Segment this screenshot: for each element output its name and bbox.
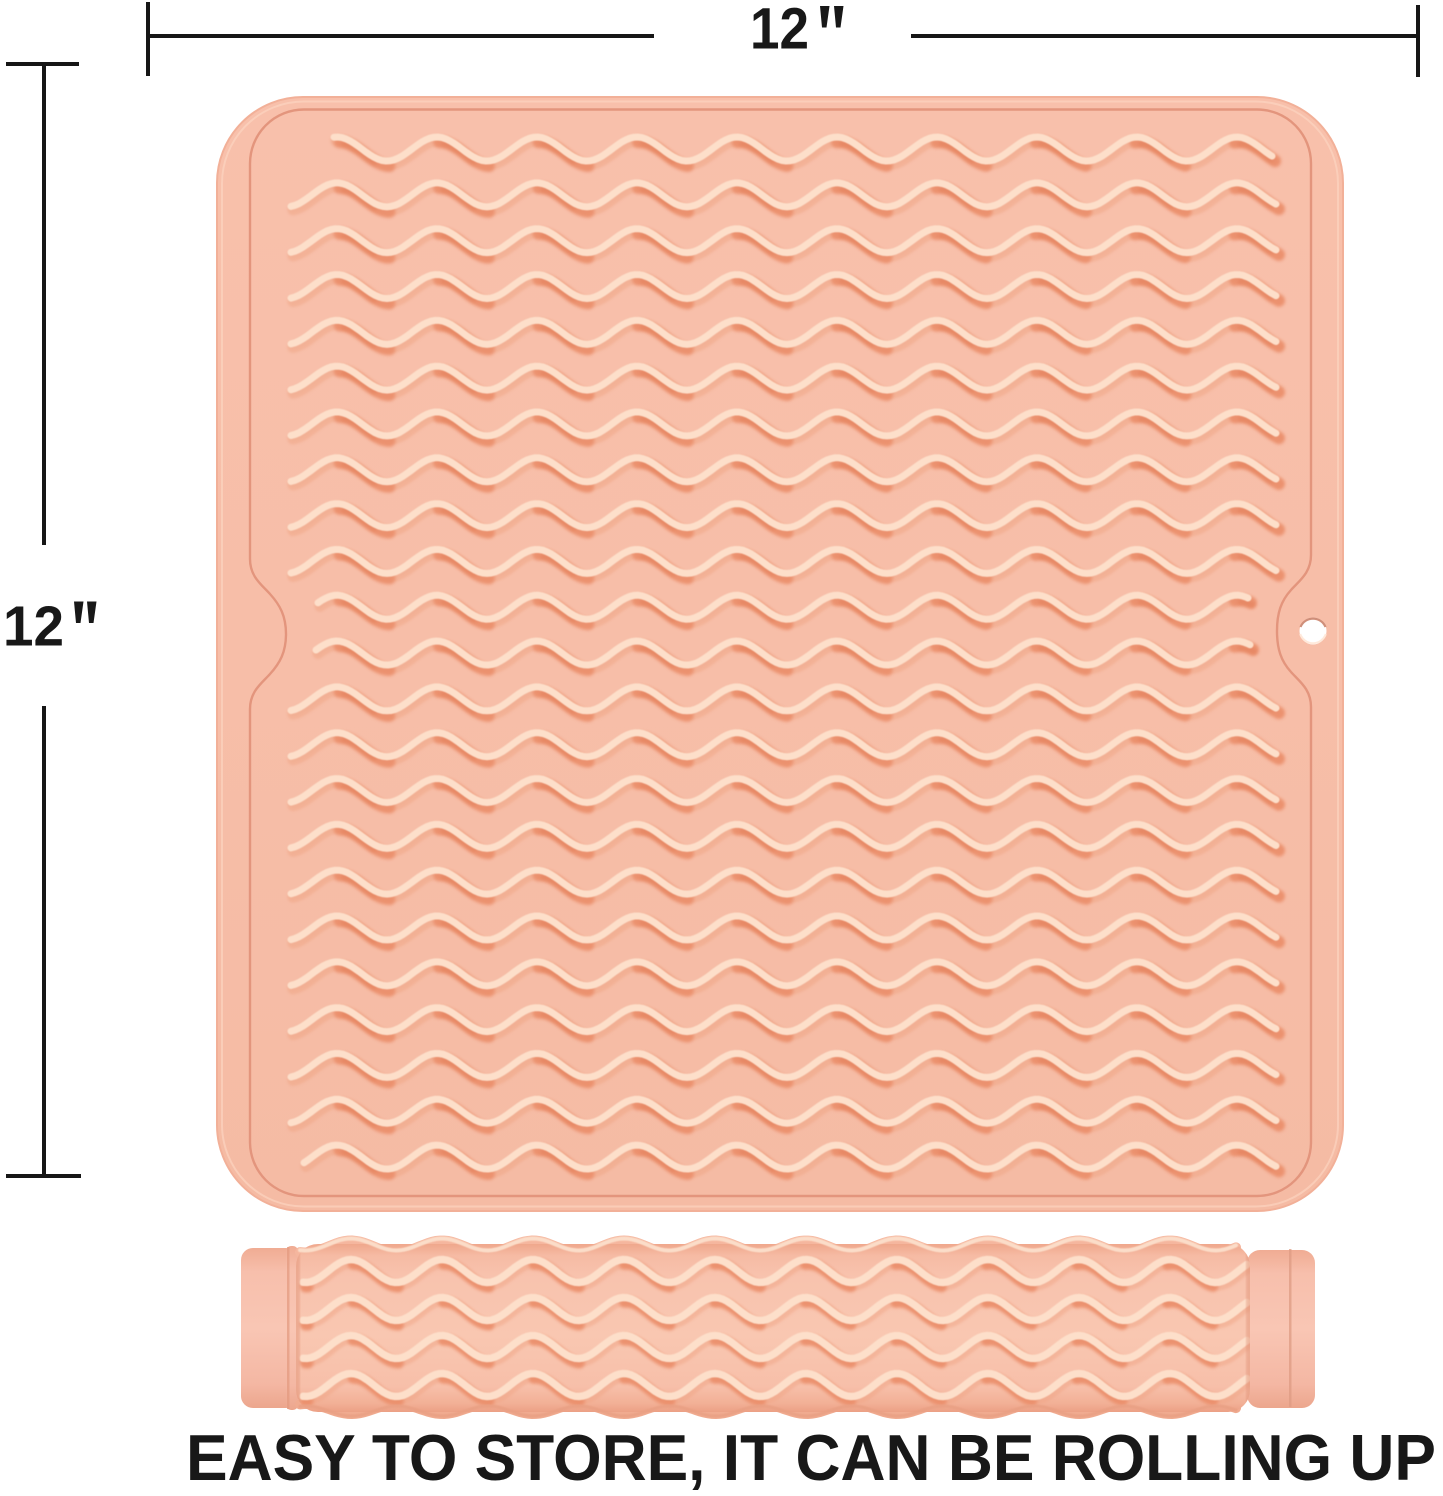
- svg-text:EASY TO STORE, IT CAN BE ROLLI: EASY TO STORE, IT CAN BE ROLLING UP: [186, 1421, 1436, 1494]
- svg-text:12: 12: [750, 0, 809, 62]
- svg-text:12: 12: [3, 595, 64, 659]
